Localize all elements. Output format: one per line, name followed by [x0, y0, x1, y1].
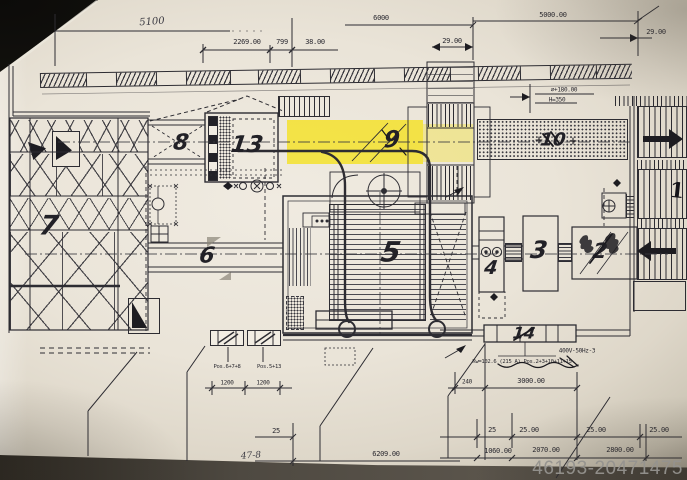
- dim-38: 38.00: [305, 38, 325, 46]
- cross-conveyor-rungs: [428, 104, 473, 127]
- zone5-right-deck: [430, 210, 466, 320]
- wall-segment: [374, 68, 404, 81]
- right-conveyor-comb: [637, 160, 687, 169]
- right-conveyor-bank-1: [637, 106, 687, 158]
- photo-of-technical-drawing: 5100 2269.00 799 38.00 6000 29.00 5000.0…: [0, 0, 687, 480]
- shaft-hatch: [558, 243, 572, 262]
- zone-label-1: 1: [668, 177, 685, 203]
- roller-chain: [626, 194, 634, 218]
- zone5-left-slats: [289, 228, 311, 286]
- wall-hatch-segment: [40, 73, 86, 87]
- right-conveyor-comb: [615, 96, 687, 106]
- electrical-panel-2: [247, 330, 281, 346]
- power-spec-voltage: 400V-50Hz-3: [559, 348, 595, 355]
- right-conveyor-comb: [637, 219, 687, 228]
- zone-label-13: 13: [229, 132, 265, 158]
- dim-2269: 2269.00: [233, 38, 260, 46]
- cross-conveyor-top: [428, 63, 473, 103]
- wall-segment: [156, 72, 186, 85]
- scale-bar-checker: [208, 116, 218, 181]
- dim-29-b: 29.00: [646, 28, 666, 36]
- dim-6000: 6000: [373, 14, 389, 22]
- electrical-panel-1: [210, 330, 244, 346]
- dim-25-b: 25: [488, 426, 496, 434]
- dim-3000: 3000.00: [517, 377, 544, 385]
- dim-1200-b: 1200: [256, 380, 269, 387]
- dim-29-a: 29.00: [442, 37, 462, 45]
- label-pos-678: Pos.6+7+8: [213, 364, 240, 370]
- handwritten-dim-top: 5100: [139, 16, 165, 29]
- handwritten-47-8: 47-8: [241, 450, 262, 461]
- zone-label-9: 9: [383, 126, 401, 153]
- dim-2070: 2070.00: [532, 446, 559, 454]
- right-structure-box: [633, 281, 686, 311]
- dim-240: 240: [462, 379, 472, 386]
- wall-segment: [86, 73, 116, 86]
- power-spec-kw: Kw=102.6 (215 A) Pos.2+3+10+11+15: [472, 359, 571, 365]
- yellow-highlight-zone9-pale: [423, 124, 473, 162]
- right-conveyor-bank-3: [637, 228, 687, 280]
- stair-block: [278, 96, 330, 117]
- dim-25-c: 25.00: [519, 426, 539, 434]
- wall-hatch-segment: [478, 66, 520, 80]
- wall-segment: [230, 71, 258, 84]
- zone5-detail-box: [286, 296, 304, 330]
- dim-5000: 5000.00: [539, 11, 566, 19]
- wall-hatch-segment: [116, 72, 156, 86]
- dim-6209: 6209.00: [372, 450, 399, 458]
- zone13-stipple-strip: [219, 116, 231, 179]
- watermark: 46193-20471475: [532, 458, 683, 480]
- wall-segment: [520, 66, 550, 79]
- wall-segment: [300, 69, 330, 82]
- cross-conveyor-rungs: [428, 166, 473, 200]
- dim-799: 799: [276, 38, 288, 46]
- dim-25-a: 25: [272, 427, 280, 435]
- dim-25-d: 25.00: [586, 426, 606, 434]
- zone5-deck: [329, 204, 426, 321]
- yellow-highlight-zone9: [287, 120, 423, 164]
- zone-label-10: 10: [539, 130, 567, 151]
- dim-1060: 1060.00: [484, 447, 511, 455]
- dim-h-350: H=350: [549, 97, 566, 104]
- dim-1200-a: 1200: [220, 380, 233, 387]
- zone7-truss-row: [10, 198, 148, 230]
- shaft-hatch: [505, 243, 522, 262]
- wall-hatch-segment: [186, 71, 230, 85]
- label-pos-513: Pos.5+13: [257, 364, 281, 370]
- wall-hatch-segment: [258, 70, 300, 84]
- wall-hatch-segment: [330, 69, 374, 83]
- wall-hatch-segment: [550, 65, 596, 79]
- dim-25-e: 25.00: [649, 426, 669, 434]
- zone-label-14: 14: [512, 324, 537, 343]
- wall-hatch-segment: [596, 65, 632, 79]
- dim-2800: 2800.00: [606, 446, 633, 454]
- dim-diameter-180: ⌀+180.00: [551, 87, 578, 94]
